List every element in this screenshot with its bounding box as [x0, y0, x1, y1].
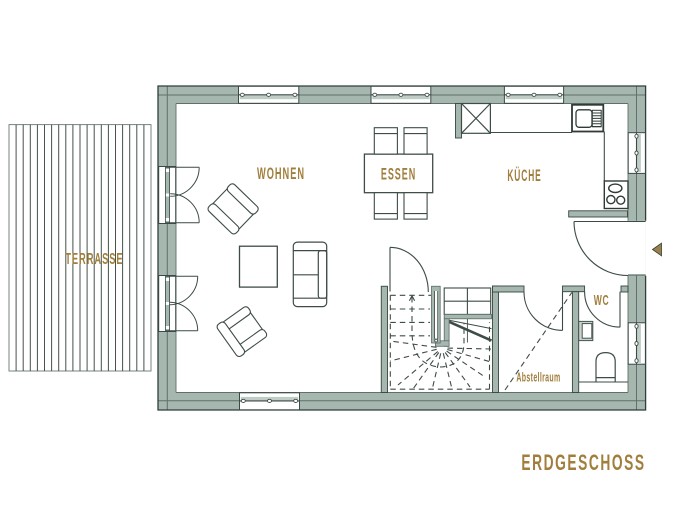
svg-text:TERRASSE: TERRASSE [65, 251, 123, 268]
svg-text:ESSEN: ESSEN [381, 165, 416, 184]
svg-text:WC: WC [594, 292, 609, 309]
svg-text:Abstellraum: Abstellraum [516, 371, 560, 385]
svg-text:WOHNEN: WOHNEN [257, 164, 305, 183]
svg-text:ERDGESCHOSS: ERDGESCHOSS [521, 450, 645, 475]
svg-text:KÜCHE: KÜCHE [507, 166, 541, 185]
